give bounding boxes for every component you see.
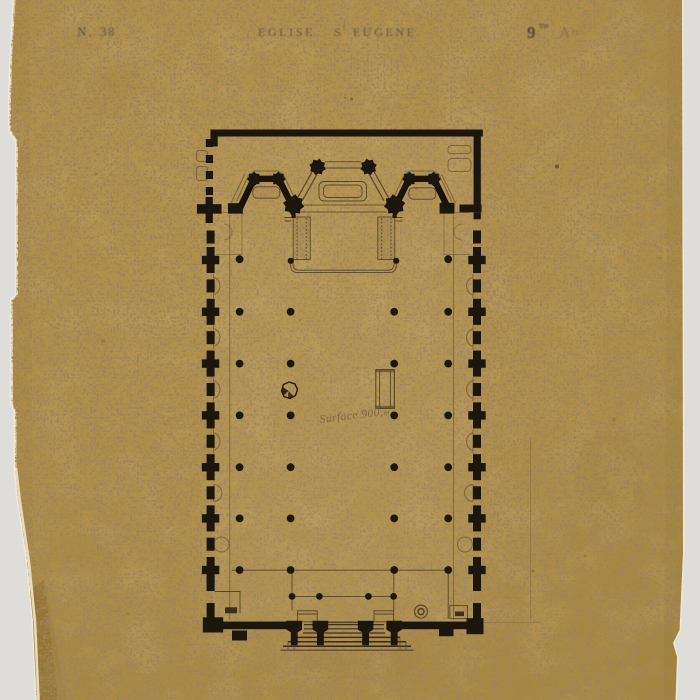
- svg-text:EUGENE: EUGENE: [353, 25, 417, 39]
- svg-text:S: S: [334, 25, 341, 39]
- svg-text:9: 9: [527, 23, 536, 42]
- svg-text:A: A: [559, 25, 571, 41]
- svg-text:N.: N.: [77, 24, 94, 39]
- svg-text:me: me: [539, 21, 549, 30]
- svg-text:rr: rr: [572, 26, 580, 38]
- svg-text:38: 38: [100, 24, 116, 39]
- svg-text:EGLISE: EGLISE: [258, 25, 315, 39]
